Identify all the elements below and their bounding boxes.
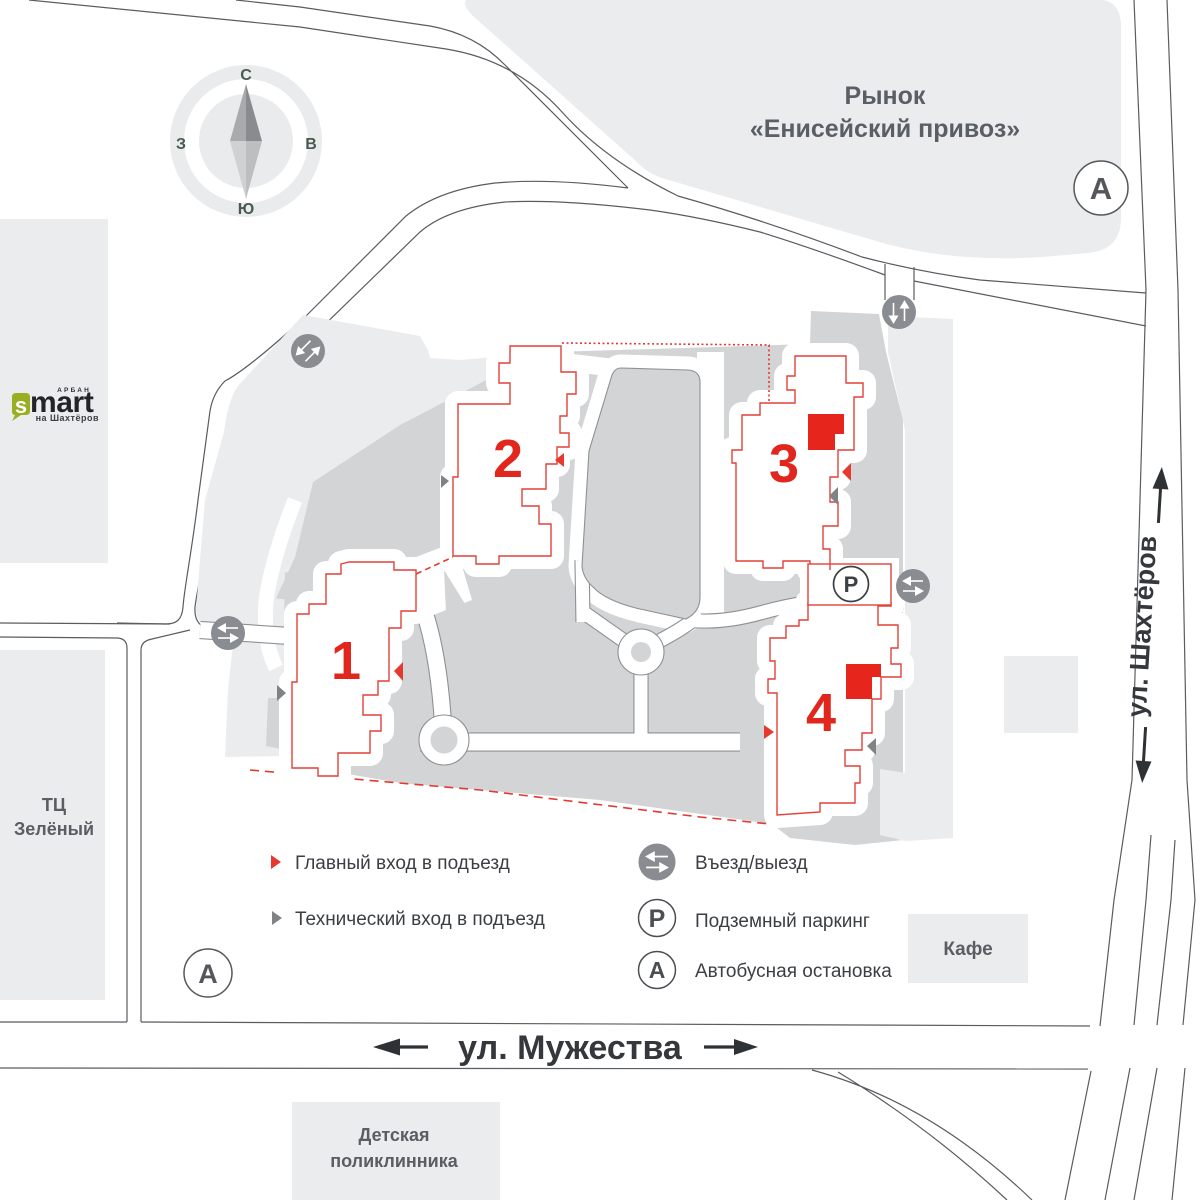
svg-text:С: С <box>240 67 252 84</box>
svg-text:Ю: Ю <box>238 201 255 218</box>
svg-text:Подземный паркинг: Подземный паркинг <box>695 911 870 932</box>
svg-text:Автобусная остановка: Автобусная остановка <box>695 961 892 982</box>
svg-text:3: 3 <box>769 434 799 494</box>
svg-text:«Енисейский привоз»: «Енисейский привоз» <box>750 115 1020 143</box>
svg-text:поликлинника: поликлинника <box>330 1151 458 1171</box>
svg-text:В: В <box>305 136 317 153</box>
svg-text:1: 1 <box>331 631 361 691</box>
svg-text:Рынок: Рынок <box>845 82 926 110</box>
svg-text:P: P <box>649 905 666 933</box>
svg-text:З: З <box>176 136 186 153</box>
svg-text:Главный вход в подъезд: Главный вход в подъезд <box>295 853 510 874</box>
svg-text:А: А <box>198 959 218 989</box>
svg-text:на Шахтёров: на Шахтёров <box>36 413 99 423</box>
svg-text:P: P <box>844 572 859 597</box>
svg-text:Технический вход в подъезд: Технический вход в подъезд <box>295 909 545 930</box>
svg-text:ТЦ: ТЦ <box>42 795 67 815</box>
svg-text:ул. Мужества: ул. Мужества <box>458 1029 683 1067</box>
svg-text:Детская: Детская <box>359 1125 430 1145</box>
svg-text:s: s <box>15 393 27 418</box>
svg-text:Кафе: Кафе <box>943 939 992 960</box>
svg-text:А: А <box>1090 171 1112 206</box>
svg-text:Зелёный: Зелёный <box>14 819 94 839</box>
svg-text:4: 4 <box>806 683 836 743</box>
svg-text:А: А <box>649 957 666 983</box>
svg-text:2: 2 <box>493 429 523 489</box>
svg-text:Въезд/выезд: Въезд/выезд <box>695 853 808 874</box>
